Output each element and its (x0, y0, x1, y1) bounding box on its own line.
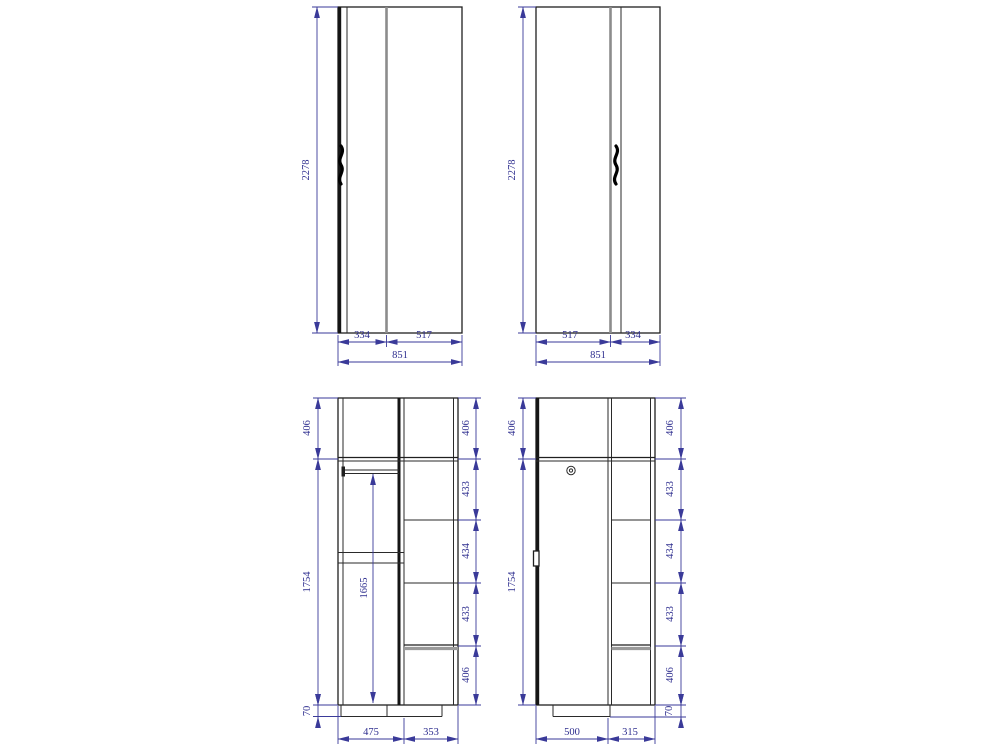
dim-door-bay-width-label: 500 (564, 727, 580, 738)
lock-icon-center (569, 469, 572, 472)
technical-drawing-sheet: 2278 334 517 851 2278 517 334 851 (0, 0, 1000, 750)
dim-gap-5-label: 406 (461, 667, 472, 683)
dim-gap-4-label: 433 (461, 606, 472, 622)
dim-gap-5-label: 406 (665, 667, 676, 683)
view-interior-left: 406 1754 70 1665 406 433 434 433 406 475 (302, 398, 481, 744)
dim-gap-2-label: 433 (461, 481, 472, 497)
door-handle-icon (534, 551, 540, 566)
dim-gap-1-label: 406 (461, 420, 472, 436)
lock-icon (567, 466, 575, 474)
dim-overall-width-label: 851 (590, 350, 606, 361)
door-handle-icon (615, 146, 618, 184)
dim-rail-height-label: 1665 (359, 578, 370, 599)
dim-overall-height-label: 2278 (507, 160, 518, 181)
dim-gap-2-label: 433 (665, 481, 676, 497)
wardrobe-drawing: 2278 334 517 851 2278 517 334 851 (0, 0, 1000, 750)
dim-plinth-label: 70 (664, 706, 675, 717)
dim-door-width-label: 334 (354, 330, 371, 341)
dim-shelf-bay-width-label: 315 (622, 727, 638, 738)
dim-overall-width-label: 851 (392, 350, 408, 361)
view-interior-right: 406 1754 406 433 434 433 406 70 500 315 (507, 398, 686, 744)
dim-gap-4-label: 433 (665, 606, 676, 622)
carcass-outline (338, 7, 462, 333)
rail-bracket (342, 467, 346, 477)
carcass-outline (536, 7, 660, 333)
view-front-right: 2278 517 334 851 (507, 7, 660, 366)
dim-door-height-label: 1754 (507, 571, 518, 593)
dim-left-bay-width-label: 475 (363, 727, 379, 738)
dim-gap-3-label: 434 (461, 542, 472, 559)
dim-panel-width-label: 517 (416, 330, 432, 341)
dim-plinth-label: 70 (302, 706, 313, 717)
dim-carcass-height-label: 1754 (302, 571, 313, 593)
dim-top-section-label: 406 (507, 420, 518, 436)
dim-panel-width-label: 517 (562, 330, 578, 341)
dim-overall-height-label: 2278 (301, 160, 312, 181)
dim-gap-3-label: 434 (665, 542, 676, 559)
carcass-outline (536, 398, 655, 705)
dim-door-width-label: 334 (625, 330, 642, 341)
dim-gap-1-label: 406 (665, 420, 676, 436)
dim-right-bay-width-label: 353 (423, 727, 439, 738)
dim-top-section-label: 406 (302, 420, 313, 436)
view-front-left: 2278 334 517 851 (301, 7, 462, 366)
